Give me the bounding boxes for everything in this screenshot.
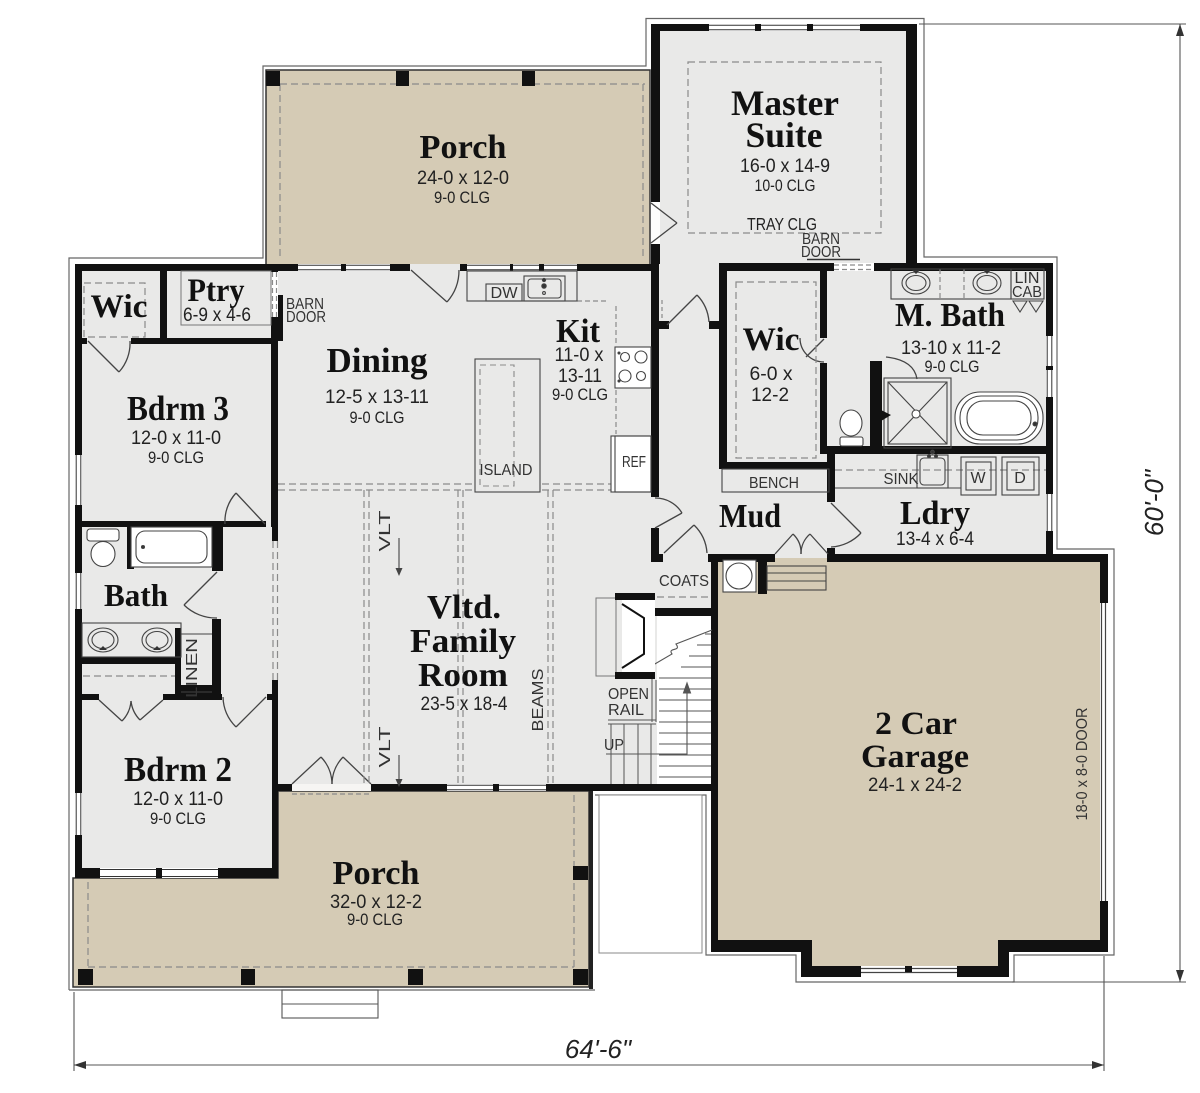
svg-text:DOOR: DOOR [286, 309, 326, 326]
svg-text:9-0 CLG: 9-0 CLG [347, 910, 403, 929]
svg-text:Mud: Mud [719, 498, 781, 535]
svg-text:Room: Room [418, 657, 508, 694]
svg-text:REF: REF [622, 454, 646, 471]
svg-text:VLT: VLT [377, 726, 394, 767]
svg-text:18-0 x 8-0 DOOR: 18-0 x 8-0 DOOR [1074, 708, 1091, 821]
svg-text:23-5 x 18-4: 23-5 x 18-4 [421, 694, 508, 715]
svg-text:Family: Family [410, 623, 516, 660]
svg-text:Wic: Wic [91, 289, 148, 325]
svg-text:LINEN: LINEN [184, 638, 201, 698]
svg-text:10-0 CLG: 10-0 CLG [755, 176, 816, 195]
svg-text:6-9 x 4-6: 6-9 x 4-6 [183, 305, 251, 326]
svg-text:Garage: Garage [861, 739, 969, 775]
svg-text:2 Car: 2 Car [875, 706, 957, 742]
svg-text:24-1 x 24-2: 24-1 x 24-2 [868, 775, 962, 796]
svg-text:13-10 x 11-2: 13-10 x 11-2 [901, 338, 1001, 359]
svg-text:VLT: VLT [377, 510, 394, 551]
svg-text:Vltd.: Vltd. [427, 589, 501, 626]
svg-text:12-0 x 11-0: 12-0 x 11-0 [133, 789, 223, 810]
svg-text:UP: UP [604, 737, 624, 754]
svg-text:OPEN: OPEN [608, 686, 649, 703]
svg-text:Porch: Porch [333, 855, 420, 892]
svg-text:RAIL: RAIL [608, 702, 644, 719]
svg-text:Bdrm 3: Bdrm 3 [127, 389, 229, 428]
svg-text:64'-6": 64'-6" [565, 1034, 633, 1064]
svg-text:9-0 CLG: 9-0 CLG [552, 385, 608, 404]
svg-text:Ldry: Ldry [900, 495, 970, 532]
svg-text:D: D [1014, 470, 1026, 487]
svg-text:W: W [970, 470, 986, 487]
svg-text:Wic: Wic [743, 322, 800, 358]
svg-text:9-0 CLG: 9-0 CLG [925, 357, 980, 376]
svg-text:9-0 CLG: 9-0 CLG [150, 809, 206, 828]
svg-text:9-0 CLG: 9-0 CLG [434, 188, 490, 207]
svg-text:DW: DW [491, 285, 519, 302]
svg-text:16-0 x 14-9: 16-0 x 14-9 [740, 156, 830, 177]
svg-text:M. Bath: M. Bath [895, 297, 1005, 334]
svg-text:9-0 CLG: 9-0 CLG [148, 448, 204, 467]
svg-text:COATS: COATS [659, 573, 709, 590]
svg-text:CAB: CAB [1012, 284, 1042, 301]
svg-text:Ptry: Ptry [188, 273, 245, 309]
svg-text:12-0 x 11-0: 12-0 x 11-0 [131, 428, 221, 449]
svg-text:ISLAND: ISLAND [480, 462, 533, 479]
svg-text:Dining: Dining [327, 341, 428, 380]
svg-text:11-0 x: 11-0 x [555, 345, 604, 366]
svg-text:13-11: 13-11 [558, 366, 602, 387]
svg-text:SINK: SINK [884, 471, 919, 488]
svg-text:12-5 x 13-11: 12-5 x 13-11 [325, 387, 429, 408]
svg-text:BEAMS: BEAMS [530, 669, 547, 732]
svg-text:BENCH: BENCH [749, 475, 799, 492]
svg-text:12-2: 12-2 [751, 385, 789, 406]
svg-text:Bdrm 2: Bdrm 2 [124, 750, 232, 789]
svg-text:Porch: Porch [420, 129, 507, 166]
svg-text:DOOR: DOOR [801, 244, 841, 261]
svg-text:Bath: Bath [104, 577, 168, 613]
svg-text:24-0 x 12-0: 24-0 x 12-0 [417, 168, 509, 189]
svg-text:6-0 x: 6-0 x [750, 364, 793, 385]
svg-text:9-0 CLG: 9-0 CLG [350, 408, 405, 427]
svg-text:60'-0": 60'-0" [1139, 468, 1169, 536]
svg-text:13-4 x 6-4: 13-4 x 6-4 [896, 529, 974, 550]
svg-text:Suite: Suite [746, 115, 823, 155]
